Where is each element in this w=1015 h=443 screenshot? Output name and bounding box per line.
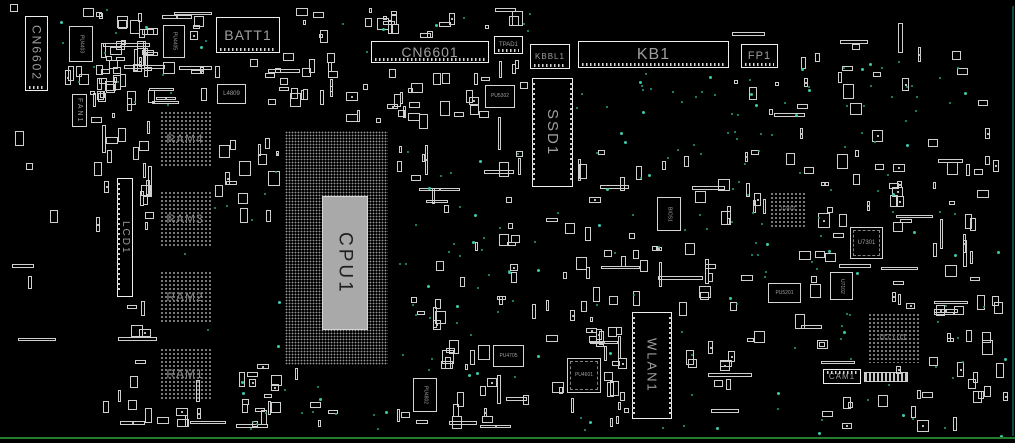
- part: [408, 88, 413, 93]
- pin-row: [534, 64, 566, 67]
- part: [618, 336, 621, 359]
- part: [618, 402, 621, 410]
- part: [177, 419, 189, 427]
- test-point: [640, 177, 642, 179]
- part: [933, 243, 937, 257]
- test-point: [856, 272, 859, 275]
- boardview-canvas[interactable]: CN6602FAN1PU4403PU4405BATT1L4809CN6601TP…: [0, 0, 1015, 443]
- test-point: [706, 228, 708, 230]
- test-point: [777, 408, 779, 410]
- test-point: [435, 24, 438, 27]
- part: [609, 296, 618, 305]
- test-point: [642, 89, 644, 91]
- part: [996, 363, 1004, 378]
- component-pu4601[interactable]: PU4601: [567, 358, 601, 393]
- part: [933, 182, 936, 189]
- test-point: [750, 93, 753, 96]
- part: [143, 163, 146, 178]
- pin-row: [532, 83, 535, 182]
- part: [497, 375, 501, 404]
- part: [162, 15, 192, 19]
- test-point: [459, 255, 461, 257]
- test-point: [440, 175, 442, 177]
- test-point: [684, 229, 686, 231]
- part: [786, 153, 795, 165]
- test-point: [844, 146, 846, 148]
- part: [518, 158, 521, 175]
- part: [897, 181, 902, 188]
- part: [902, 78, 909, 91]
- part: [127, 98, 132, 111]
- part: [893, 164, 905, 172]
- part: [391, 14, 397, 25]
- test-point: [749, 79, 751, 81]
- test-point: [606, 106, 608, 108]
- component-pu4802[interactable]: PU4802: [413, 378, 437, 412]
- part: [684, 156, 689, 167]
- component-label-pu5201: PU5201: [775, 291, 793, 296]
- part: [290, 93, 301, 107]
- part: [50, 210, 58, 223]
- test-point: [758, 150, 760, 152]
- test-point: [811, 261, 813, 263]
- component-u7101[interactable]: U7101: [867, 312, 920, 363]
- part: [842, 423, 852, 429]
- part: [179, 66, 212, 70]
- component-pu4403[interactable]: PU4403: [69, 26, 93, 62]
- part: [83, 8, 94, 17]
- component-label-kbbl1: KBBL1: [535, 53, 565, 61]
- part: [853, 174, 860, 185]
- part: [411, 175, 421, 181]
- test-point: [877, 190, 879, 192]
- test-point: [226, 205, 228, 207]
- test-point: [691, 394, 693, 396]
- component-kb1[interactable]: KB1: [578, 41, 729, 68]
- test-point: [957, 337, 959, 339]
- test-point: [937, 321, 939, 323]
- part: [117, 16, 128, 28]
- part: [799, 251, 811, 260]
- part: [839, 214, 847, 227]
- test-point: [335, 413, 337, 415]
- pin-row: [375, 58, 485, 61]
- part: [487, 378, 497, 387]
- part: [156, 97, 176, 100]
- test-point: [483, 237, 485, 239]
- test-point: [683, 425, 685, 427]
- test-point: [755, 104, 758, 107]
- test-point: [264, 193, 266, 195]
- test-point: [598, 224, 601, 227]
- test-point: [214, 207, 216, 209]
- component-cn6601[interactable]: CN6601: [371, 41, 489, 63]
- part: [801, 325, 822, 329]
- test-point: [677, 149, 679, 151]
- part: [474, 73, 478, 85]
- component-u7102[interactable]: U7102: [830, 272, 853, 300]
- part: [148, 188, 151, 196]
- test-point: [429, 317, 431, 319]
- part: [601, 266, 640, 269]
- test-point: [820, 235, 822, 237]
- component-label-fan1: FAN1: [76, 98, 83, 124]
- test-point: [456, 305, 459, 308]
- part: [917, 390, 921, 399]
- pin-row: [669, 317, 672, 414]
- part: [957, 362, 964, 377]
- test-point: [699, 214, 701, 216]
- test-point: [78, 81, 80, 83]
- part: [403, 106, 406, 118]
- part: [974, 169, 983, 175]
- test-point: [117, 81, 119, 83]
- test-point: [606, 188, 609, 191]
- part: [565, 223, 575, 234]
- part: [425, 145, 428, 175]
- test-point: [459, 206, 461, 208]
- component-pu4705[interactable]: PU4705: [493, 345, 524, 367]
- test-point: [448, 251, 450, 253]
- component-label-wlan1: WLAN1: [646, 338, 659, 393]
- test-point: [415, 314, 417, 316]
- part: [499, 234, 509, 246]
- test-point: [514, 376, 516, 378]
- component-label-batt1: BATT1: [224, 28, 272, 42]
- part: [848, 402, 853, 408]
- part: [839, 264, 871, 268]
- part: [266, 210, 271, 222]
- part: [103, 401, 109, 413]
- part: [804, 167, 814, 174]
- test-point: [405, 263, 407, 265]
- part: [313, 12, 324, 18]
- part: [708, 341, 713, 354]
- component-label-kb1: KB1: [637, 47, 670, 63]
- test-point: [849, 314, 851, 316]
- test-point: [850, 358, 852, 360]
- test-point: [104, 52, 106, 54]
- test-point: [799, 172, 801, 174]
- part: [100, 91, 105, 98]
- board-right-edge-line: [1012, 6, 1014, 436]
- component-lcd1[interactable]: LCD1: [117, 178, 133, 297]
- test-point: [427, 285, 430, 288]
- pin-row: [29, 86, 44, 89]
- part: [685, 243, 695, 255]
- component-ram1[interactable]: RAM1: [159, 347, 211, 400]
- component-l4809[interactable]: L4809: [217, 84, 246, 104]
- component-u7301[interactable]: U7301: [850, 227, 883, 259]
- part: [465, 364, 468, 370]
- part: [106, 84, 115, 93]
- part: [268, 171, 280, 186]
- part: [239, 161, 251, 176]
- component-bios1[interactable]: BIOS1: [657, 197, 681, 231]
- part: [376, 118, 381, 123]
- test-point: [134, 101, 136, 103]
- part: [96, 217, 100, 232]
- part: [506, 197, 512, 203]
- component-kbbl1[interactable]: KBBL1: [530, 44, 570, 69]
- part: [436, 261, 444, 271]
- part: [590, 317, 593, 322]
- part: [499, 61, 502, 78]
- part: [417, 311, 425, 315]
- test-point: [537, 355, 540, 358]
- component-label-pu4405: PU4405: [172, 32, 177, 50]
- test-point: [843, 67, 845, 69]
- test-point: [402, 354, 404, 356]
- part: [120, 421, 145, 425]
- part: [112, 113, 115, 118]
- component-cam1[interactable]: CAM1: [823, 369, 861, 384]
- part: [618, 358, 627, 369]
- test-point: [840, 338, 842, 340]
- component-cpu1-die[interactable]: CPU1: [322, 196, 368, 330]
- component-label-u7301: U7301: [858, 240, 876, 246]
- test-point: [954, 213, 956, 215]
- test-point: [821, 419, 823, 421]
- part: [444, 205, 449, 213]
- part: [726, 379, 731, 390]
- part: [365, 18, 372, 27]
- part: [303, 20, 306, 25]
- component-label-pu4705: PU4705: [499, 354, 517, 359]
- part: [512, 11, 523, 26]
- part: [994, 302, 1003, 314]
- test-point: [888, 384, 890, 386]
- part: [817, 340, 828, 349]
- part: [878, 395, 888, 407]
- part: [426, 200, 448, 203]
- part: [893, 222, 903, 232]
- test-point: [777, 392, 780, 395]
- test-point: [700, 153, 702, 155]
- test-point: [945, 305, 947, 307]
- test-point: [681, 101, 683, 103]
- part: [240, 208, 248, 223]
- test-point: [377, 428, 379, 430]
- test-point: [373, 414, 375, 416]
- component-ram3[interactable]: RAM3: [159, 190, 211, 247]
- part: [68, 66, 74, 81]
- component-batt1[interactable]: BATT1: [216, 17, 280, 53]
- part: [401, 412, 410, 418]
- component-fan1[interactable]: FAN1: [72, 94, 87, 127]
- part: [589, 197, 601, 203]
- part: [546, 335, 558, 342]
- component-pu5302[interactable]: PU5302: [485, 85, 515, 108]
- part: [546, 300, 549, 311]
- part: [711, 409, 739, 413]
- test-point: [808, 89, 811, 92]
- part: [318, 420, 321, 427]
- test-point: [957, 67, 959, 69]
- part: [658, 276, 703, 280]
- part: [741, 275, 753, 281]
- test-point: [861, 68, 864, 71]
- part: [118, 337, 157, 341]
- component-label-cpu1: CPU1: [336, 232, 355, 295]
- part: [624, 408, 629, 413]
- test-point: [863, 105, 865, 107]
- test-point: [861, 132, 863, 134]
- test-point: [736, 138, 738, 140]
- test-point: [906, 86, 908, 88]
- part: [409, 102, 420, 108]
- part: [708, 373, 752, 377]
- test-point: [983, 306, 985, 308]
- part: [906, 303, 915, 309]
- part: [320, 90, 324, 105]
- part: [296, 8, 308, 16]
- component-ram2[interactable]: RAM2: [159, 270, 211, 323]
- component-wlan1[interactable]: WLAN1: [632, 312, 672, 419]
- component-fp1[interactable]: FP1: [741, 44, 778, 68]
- part: [837, 154, 848, 169]
- part: [145, 222, 148, 230]
- test-point: [242, 392, 245, 395]
- test-point: [557, 212, 559, 214]
- test-point: [407, 151, 409, 153]
- part: [610, 418, 613, 427]
- part: [93, 93, 96, 107]
- test-point: [645, 73, 647, 75]
- pin-row: [498, 49, 519, 52]
- part: [479, 111, 489, 118]
- part: [197, 408, 201, 419]
- test-point: [915, 110, 917, 112]
- part: [283, 53, 294, 61]
- test-point: [916, 96, 918, 98]
- part: [499, 296, 503, 305]
- test-point: [428, 187, 431, 190]
- test-point: [869, 63, 872, 66]
- part: [257, 364, 269, 369]
- component-pu5201[interactable]: PU5201: [768, 283, 801, 303]
- part: [446, 348, 455, 353]
- part: [258, 154, 267, 165]
- test-point: [737, 114, 739, 116]
- part: [947, 338, 954, 342]
- test-point: [256, 423, 258, 425]
- test-point: [115, 32, 117, 34]
- part: [320, 30, 328, 43]
- part: [563, 272, 567, 279]
- part: [985, 128, 990, 139]
- part: [984, 386, 991, 397]
- test-point: [93, 66, 95, 68]
- test-point: [935, 366, 937, 368]
- component-label-pu4802: PU4802: [423, 386, 428, 404]
- test-point: [534, 241, 536, 243]
- part: [662, 161, 666, 170]
- part: [94, 162, 102, 176]
- test-point: [301, 412, 303, 414]
- component-ram4[interactable]: RAM4: [159, 110, 211, 167]
- test-point: [366, 51, 368, 53]
- part: [357, 110, 360, 122]
- component-label-cn6602: CN6602: [31, 25, 43, 81]
- test-point: [816, 268, 818, 270]
- test-point: [145, 26, 148, 29]
- test-point: [887, 174, 889, 176]
- pad-row: [864, 372, 908, 382]
- part: [271, 402, 281, 413]
- test-point: [474, 214, 477, 217]
- part: [481, 77, 490, 81]
- test-point: [905, 120, 907, 122]
- part: [616, 327, 622, 335]
- part: [238, 193, 248, 204]
- test-point: [537, 269, 540, 272]
- part: [571, 398, 574, 413]
- test-point: [818, 432, 821, 435]
- component-pu4405[interactable]: PU4405: [163, 25, 185, 58]
- part: [593, 287, 600, 302]
- part: [460, 277, 465, 287]
- component-u2402[interactable]: U2402: [769, 191, 807, 227]
- test-point: [468, 374, 471, 377]
- part: [985, 156, 990, 165]
- part: [763, 199, 766, 214]
- part: [141, 301, 145, 316]
- part: [721, 211, 731, 225]
- part: [113, 67, 121, 74]
- test-point: [709, 76, 712, 79]
- test-point: [250, 428, 252, 430]
- test-point: [596, 304, 598, 306]
- part: [850, 103, 862, 115]
- part: [714, 380, 723, 387]
- test-point: [642, 111, 645, 114]
- test-point: [62, 42, 64, 44]
- test-point: [784, 102, 786, 104]
- part: [419, 188, 460, 191]
- test-point: [1004, 358, 1007, 361]
- test-point: [470, 334, 472, 336]
- part: [892, 292, 896, 302]
- part: [147, 121, 150, 134]
- test-point: [624, 141, 627, 144]
- part: [718, 179, 730, 191]
- part: [397, 161, 402, 172]
- pin-row: [117, 183, 120, 292]
- part: [12, 264, 34, 268]
- test-point: [319, 398, 322, 401]
- component-label-u7101: U7101: [879, 334, 908, 342]
- part: [633, 250, 639, 259]
- part: [242, 399, 249, 405]
- part: [952, 51, 961, 60]
- part: [295, 368, 298, 380]
- part: [949, 201, 955, 205]
- component-ssd1[interactable]: SSD1: [532, 78, 573, 187]
- test-point: [415, 224, 417, 226]
- part: [397, 409, 400, 422]
- component-tpad1[interactable]: TPAD1: [494, 36, 523, 54]
- test-point: [662, 427, 664, 429]
- test-point: [795, 114, 798, 117]
- part: [815, 251, 825, 258]
- part: [581, 301, 587, 312]
- part: [480, 425, 511, 428]
- part: [833, 233, 844, 238]
- component-cn6602[interactable]: CN6602: [25, 16, 48, 91]
- component-label-ssd1: SSD1: [545, 109, 560, 156]
- test-point: [342, 23, 344, 25]
